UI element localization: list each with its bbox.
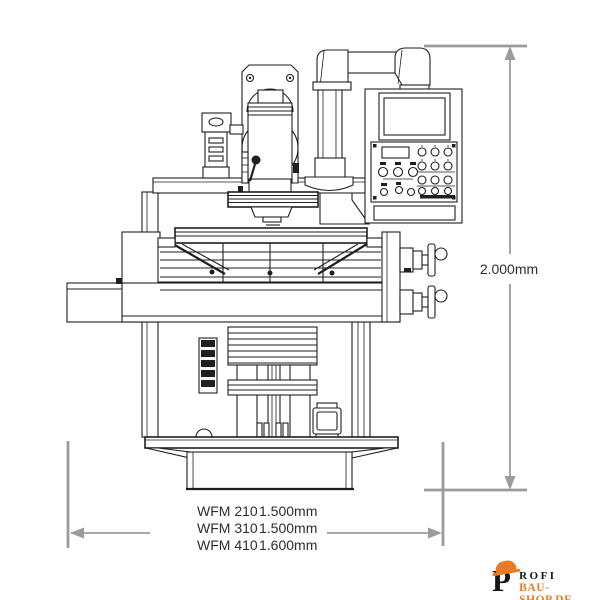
model-name: WFM 210 xyxy=(197,503,259,520)
elevating-mechanism xyxy=(196,327,341,439)
electrical-box xyxy=(202,113,243,178)
model-dimension-row: WFM 310 1.500mm xyxy=(197,520,347,537)
readout-display xyxy=(382,147,409,158)
handwheel-upper xyxy=(400,244,447,276)
model-width-value: 1.500mm xyxy=(259,520,347,537)
pendant-support-bracket xyxy=(320,193,369,224)
profi-bau-shop-logo: P ROFI BAU-SHOP.DE xyxy=(491,561,600,600)
chain-stack xyxy=(199,338,217,393)
height-dimension-label: 2.000mm xyxy=(469,261,549,277)
model-dimension-row: WFM 410 1.600mm xyxy=(197,537,347,554)
machine-base xyxy=(145,437,398,489)
model-width-value: 1.600mm xyxy=(259,537,347,554)
knee-and-table xyxy=(67,228,447,322)
model-dimension-table: WFM 210 1.500mm WFM 310 1.500mm WFM 410 … xyxy=(197,503,347,554)
panel-tray xyxy=(374,206,455,220)
logo-domain: BAU-SHOP.DE xyxy=(519,582,600,600)
model-dimension-row: WFM 210 1.500mm xyxy=(197,503,347,520)
logo-name-rest: ROFI xyxy=(519,571,600,582)
logo-letter-p: P xyxy=(491,561,517,597)
cover-dome xyxy=(196,429,212,437)
model-width-value: 1.500mm xyxy=(259,503,347,520)
model-name: WFM 410 xyxy=(197,537,259,554)
feed-motor xyxy=(313,403,341,439)
product-technical-drawing: 2.000mm WFM 210 1.500mm WFM 310 1.500mm … xyxy=(0,0,600,600)
model-name: WFM 310 xyxy=(197,520,259,537)
hard-hat-icon xyxy=(494,559,517,574)
spindle-motor xyxy=(248,103,299,192)
logo-text: ROFI BAU-SHOP.DE xyxy=(519,561,600,600)
spindle-nose xyxy=(228,186,318,225)
monitor-bezel xyxy=(379,93,450,140)
control-panel xyxy=(365,89,462,223)
handwheel-lower xyxy=(400,286,447,318)
